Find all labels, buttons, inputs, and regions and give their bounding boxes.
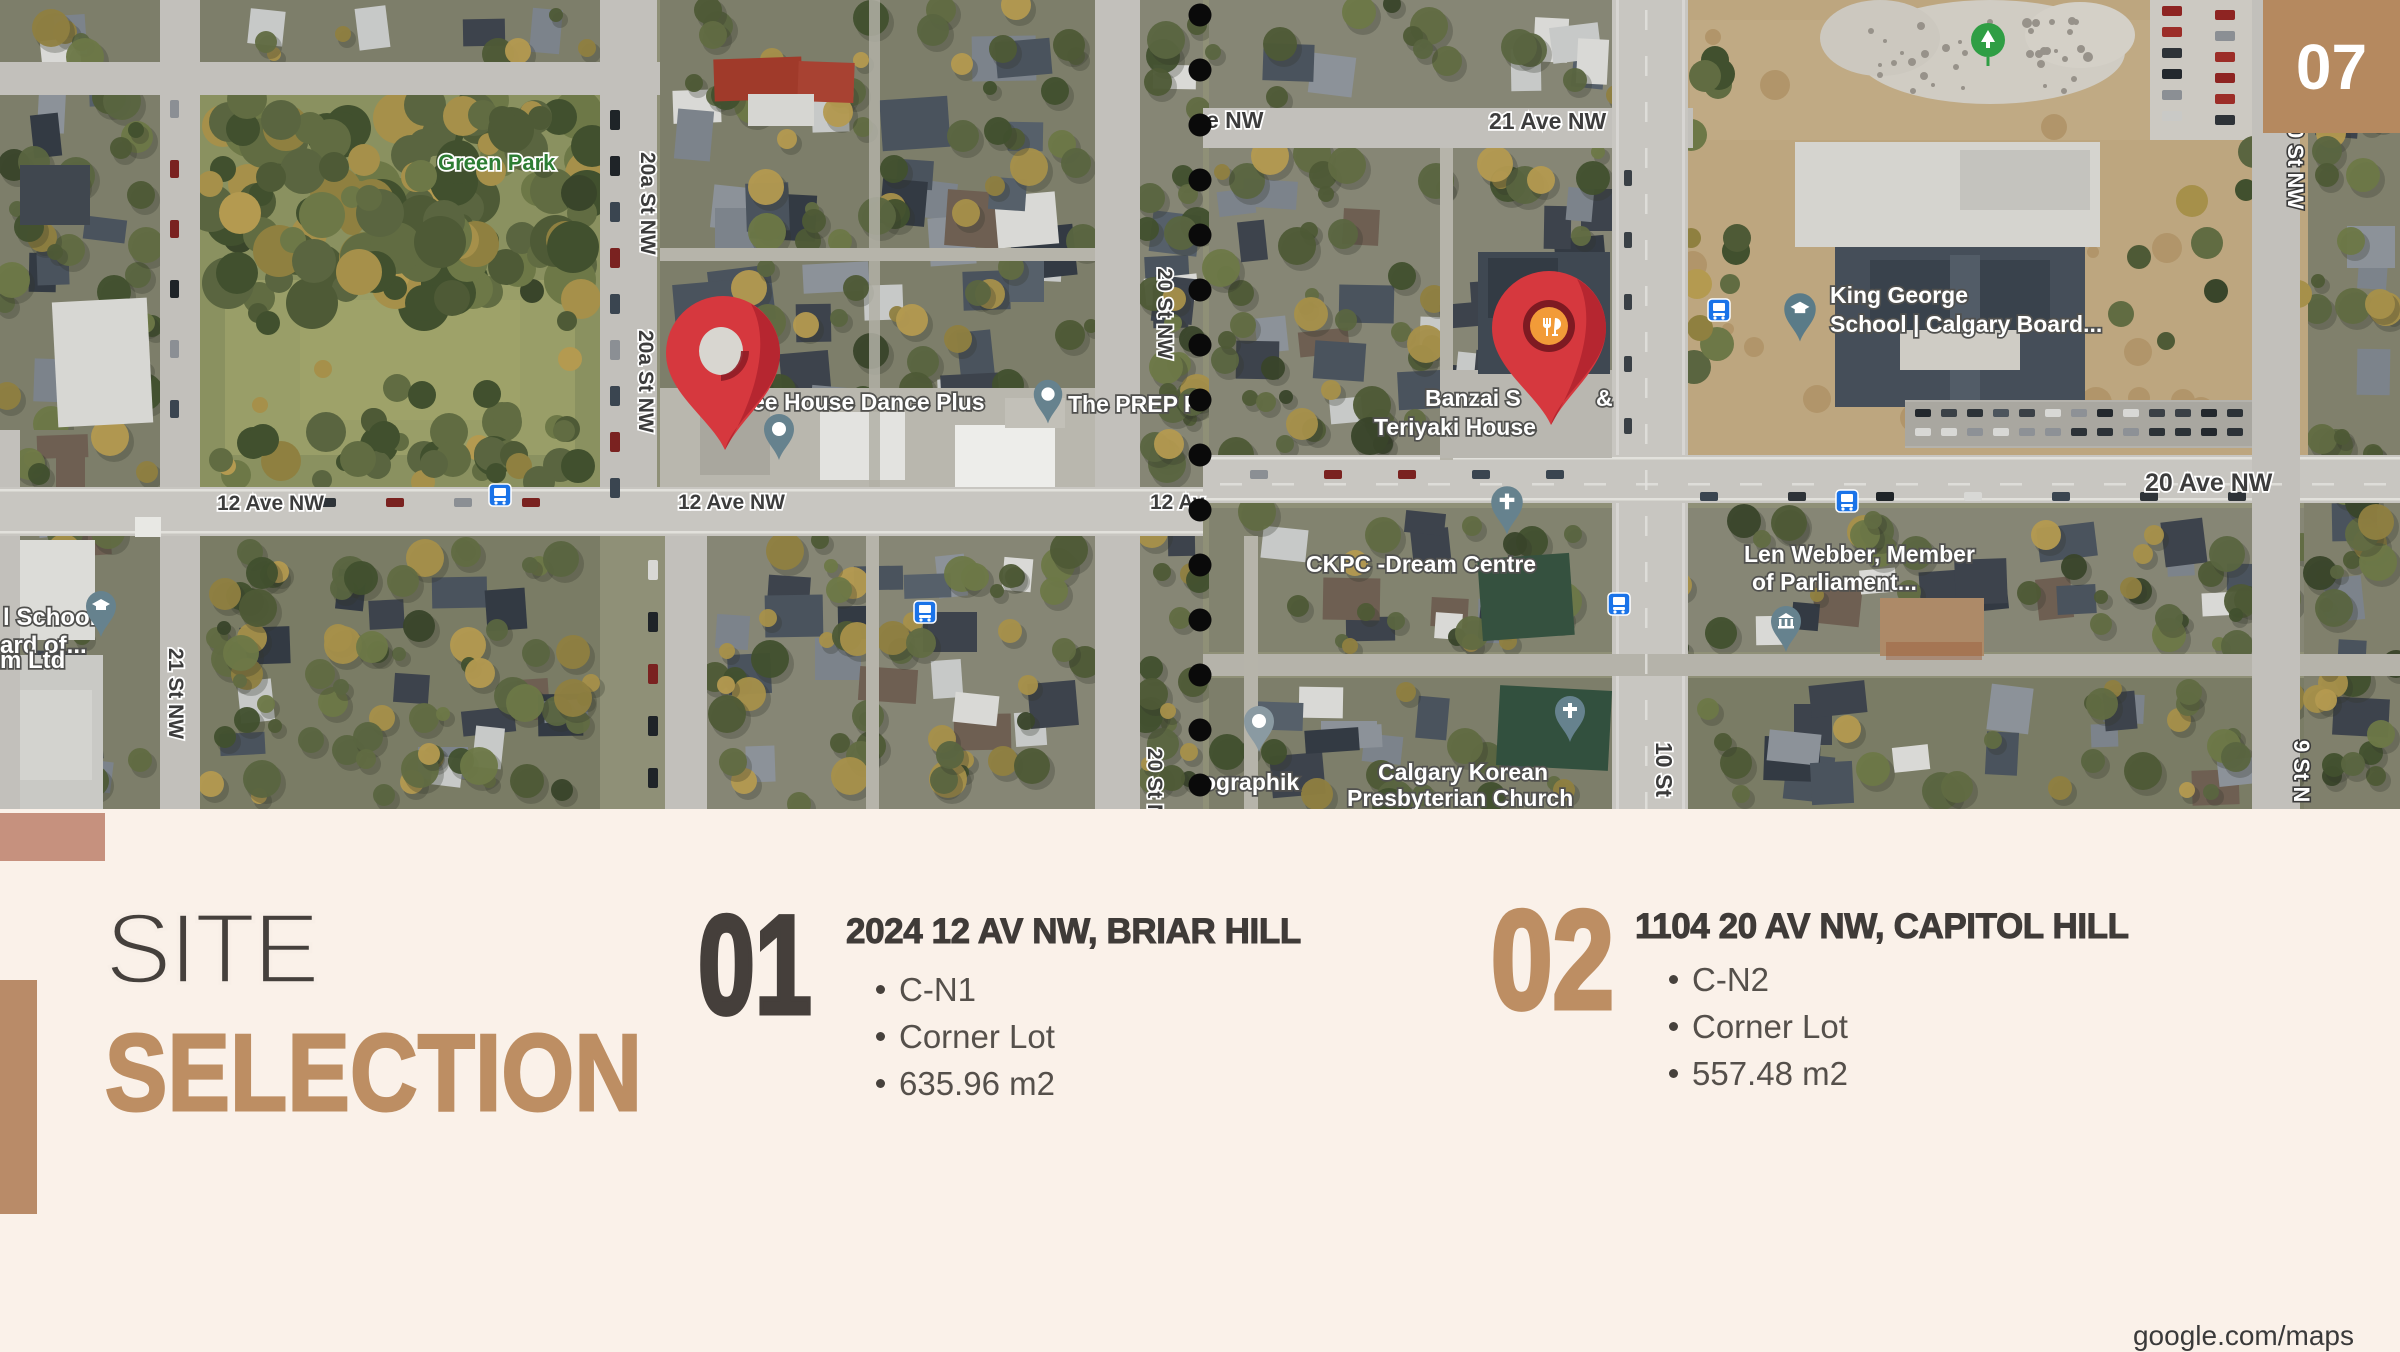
svg-text:CKPC -Dream Centre: CKPC -Dream Centre <box>1306 551 1536 577</box>
svg-text:12 Ave NW: 12 Ave NW <box>678 491 785 514</box>
svg-text:&: & <box>1596 385 1613 411</box>
svg-text:ographik: ographik <box>1202 769 1299 795</box>
svg-text:10 St: 10 St <box>1651 742 1677 797</box>
svg-text:Calgary Korean: Calgary Korean <box>1378 759 1548 785</box>
svg-text:20a St NW: 20a St NW <box>636 152 659 255</box>
svg-text:20 St N: 20 St N <box>1143 748 1166 809</box>
svg-text:Presbyterian Church: Presbyterian Church <box>1347 785 1573 809</box>
svg-text:King George: King George <box>1830 282 1968 308</box>
svg-text:Len Webber, Member: Len Webber, Member <box>1744 541 1975 567</box>
svg-text:21 St NW: 21 St NW <box>164 648 187 739</box>
svg-text:e NW: e NW <box>1206 107 1264 133</box>
svg-text:m Ltd: m Ltd <box>0 647 65 674</box>
svg-text:ee House Dance Plus: ee House Dance Plus <box>752 389 985 415</box>
svg-text:School | Calgary Board...: School | Calgary Board... <box>1830 311 2102 337</box>
svg-text:Teriyaki House: Teriyaki House <box>1374 414 1536 440</box>
svg-text:l School: l School <box>3 604 96 631</box>
svg-text:Banzai S: Banzai S <box>1425 385 1521 411</box>
svg-text:of Parliament...: of Parliament... <box>1752 569 1917 595</box>
svg-text:21 Ave NW: 21 Ave NW <box>1489 108 1606 134</box>
svg-text:9 St N: 9 St N <box>2289 740 2314 802</box>
svg-text:0 St NW: 0 St NW <box>2283 126 2308 209</box>
svg-text:20 St NW: 20 St NW <box>1153 268 1176 359</box>
svg-text:20a St NW: 20a St NW <box>634 330 657 433</box>
svg-text:12 Ave NW: 12 Ave NW <box>217 492 324 515</box>
svg-text:Green Park: Green Park <box>438 150 556 175</box>
svg-text:20 Ave NW: 20 Ave NW <box>2145 469 2273 497</box>
svg-text:The PREP P: The PREP P <box>1068 391 1199 417</box>
